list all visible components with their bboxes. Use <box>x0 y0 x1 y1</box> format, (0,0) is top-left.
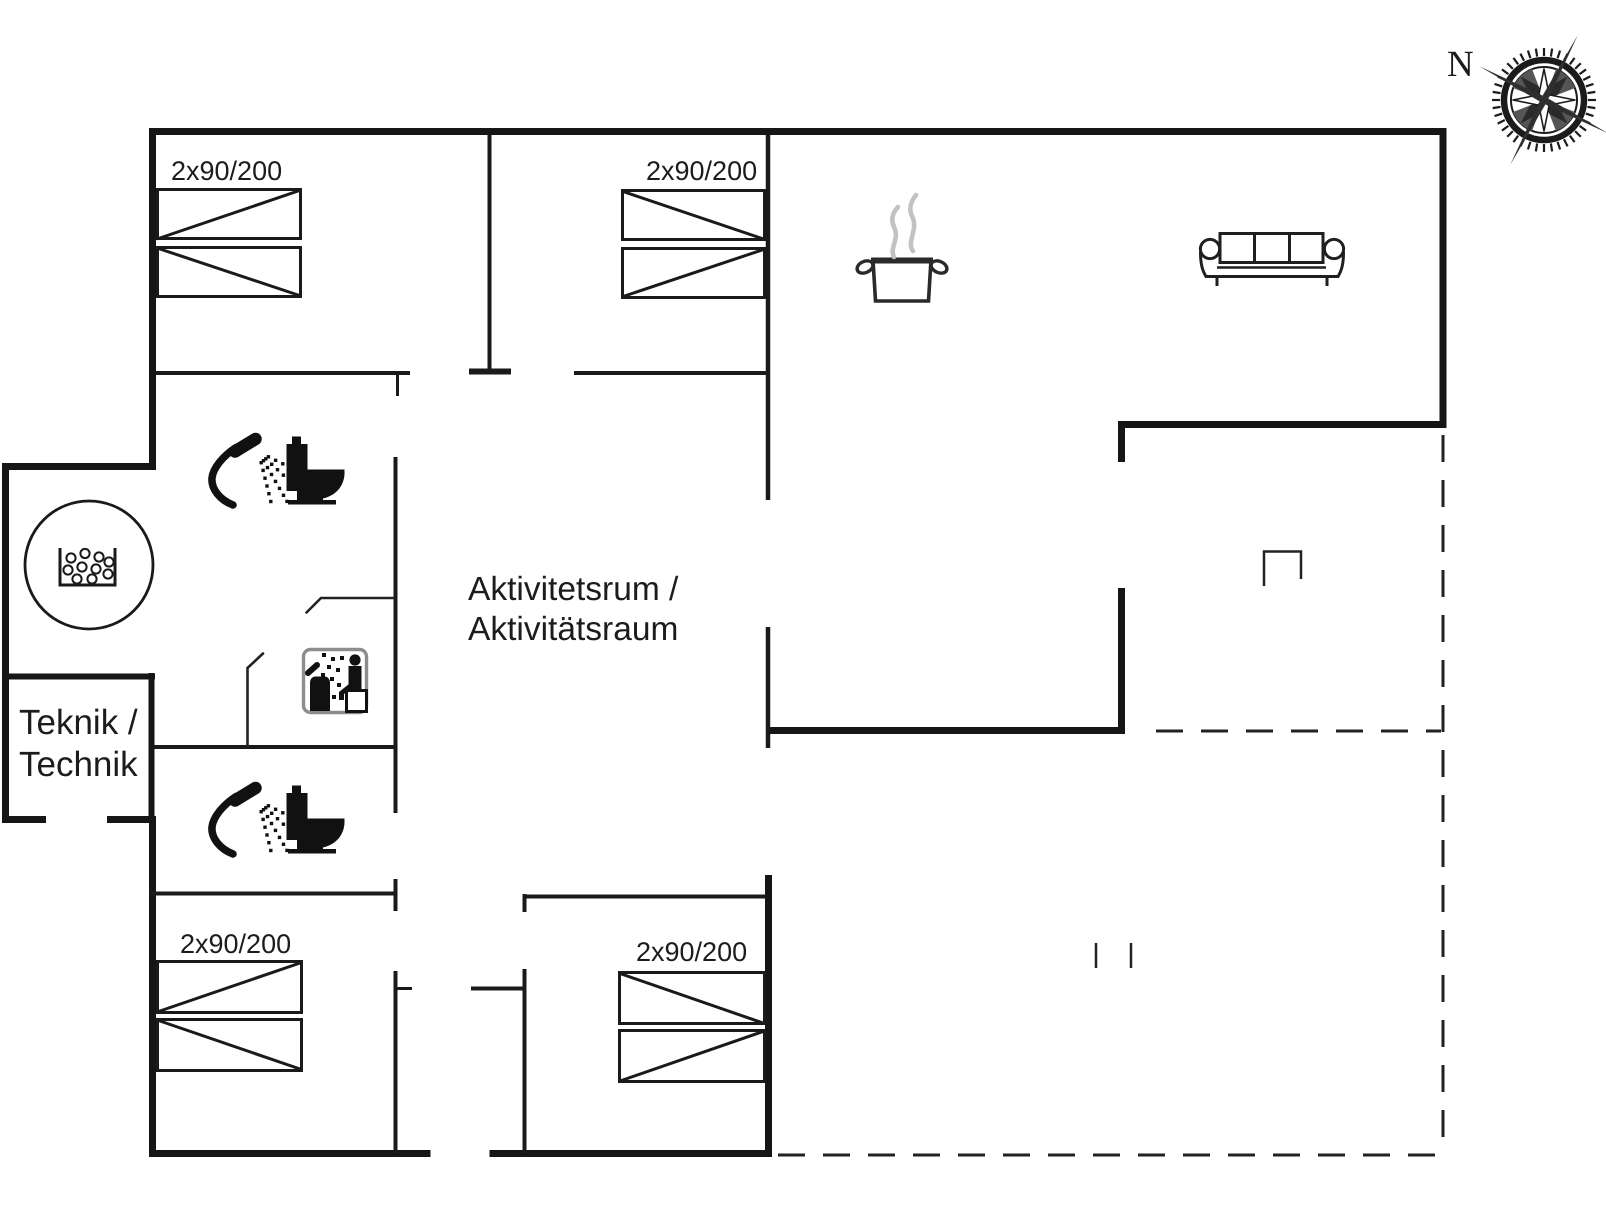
svg-text:Teknik /: Teknik / <box>19 703 138 742</box>
svg-text:2x90/200: 2x90/200 <box>180 929 291 959</box>
svg-text:Aktivitetsrum /: Aktivitetsrum / <box>468 571 679 608</box>
svg-text:Aktivitätsraum: Aktivitätsraum <box>468 611 678 648</box>
svg-text:N: N <box>1447 44 1474 85</box>
svg-text:2x90/200: 2x90/200 <box>171 156 282 186</box>
svg-text:2x90/200: 2x90/200 <box>646 156 757 186</box>
svg-text:Technik: Technik <box>19 745 138 784</box>
svg-text:2x90/200: 2x90/200 <box>636 937 747 967</box>
